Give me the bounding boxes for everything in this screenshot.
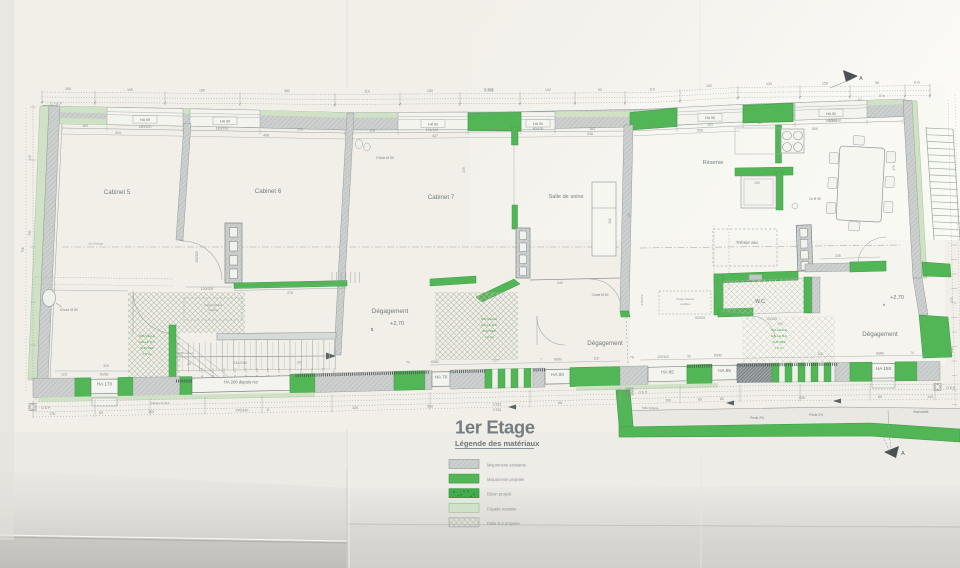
svg-text:8 m: 8 m: [914, 81, 920, 85]
svg-text:Etanchéité: Etanchéité: [913, 410, 928, 414]
svg-text:Dégagement: Dégagement: [372, 308, 409, 315]
svg-text:± 5 m²: ± 5 m²: [143, 352, 152, 356]
svg-text:80/90: 80/90: [554, 357, 562, 361]
svg-text:SUR REZ: SUR REZ: [772, 340, 786, 344]
svg-text:O E.P.: O E.P.: [946, 386, 956, 390]
svg-text:939: 939: [799, 396, 805, 400]
svg-text:Maçonnerie projetée: Maçonnerie projetée: [487, 477, 525, 482]
svg-text:118: 118: [492, 127, 498, 131]
svg-text:DALLE B.A: DALLE B.A: [771, 334, 788, 338]
svg-text:Dégagement: Dégagement: [862, 331, 898, 338]
svg-text:150: 150: [427, 89, 433, 93]
svg-text:20: 20: [187, 362, 191, 366]
svg-text:310: 310: [115, 131, 121, 135]
svg-text:550: 550: [427, 404, 433, 408]
svg-text:58: 58: [875, 81, 879, 85]
svg-text:HA 155: HA 155: [876, 366, 892, 371]
svg-text:58: 58: [558, 401, 562, 405]
svg-text:SUR REZ: SUR REZ: [482, 329, 496, 333]
svg-text:Chute Ø 50: Chute Ø 50: [592, 293, 609, 297]
svg-text:Pente 2%: Pente 2%: [750, 416, 764, 420]
svg-text:235: 235: [835, 254, 841, 258]
svg-text:310: 310: [28, 155, 32, 161]
svg-text:60: 60: [99, 411, 103, 415]
svg-text:92: 92: [598, 88, 602, 92]
svg-text:80/82: 80/82: [431, 360, 439, 364]
svg-text:140: 140: [927, 395, 933, 399]
svg-text:110: 110: [364, 89, 370, 93]
svg-text:180/100: 180/100: [426, 128, 439, 132]
svg-text:240: 240: [950, 347, 954, 353]
svg-text:240: 240: [557, 281, 563, 285]
svg-text:60/60: 60/60: [100, 373, 109, 377]
svg-text:150: 150: [822, 82, 828, 86]
svg-text:160: 160: [65, 87, 71, 91]
svg-text:+2,70: +2,70: [390, 321, 404, 327]
svg-text:Trémie asc: Trémie asc: [736, 240, 759, 245]
svg-text:A: A: [901, 451, 905, 457]
svg-text:150: 150: [199, 88, 205, 92]
svg-text:90/100: 90/100: [533, 127, 544, 131]
svg-text:NOUVELLE: NOUVELLE: [139, 334, 156, 338]
svg-text:5,88 sur rez: 5,88 sur rez: [178, 351, 194, 355]
svg-text:470: 470: [950, 297, 954, 303]
svg-text:HA 85: HA 85: [718, 368, 731, 373]
svg-text:430: 430: [462, 167, 466, 173]
svg-text:90: 90: [627, 213, 631, 217]
svg-text:SUR REZ: SUR REZ: [140, 346, 154, 350]
svg-text:123: 123: [61, 373, 67, 377]
svg-text:100/205: 100/205: [195, 251, 199, 263]
svg-text:8 m: 8 m: [879, 94, 885, 98]
svg-text:60: 60: [698, 398, 702, 402]
svg-text:+2,70: +2,70: [890, 295, 904, 301]
svg-text:330: 330: [352, 406, 358, 410]
svg-text:100: 100: [754, 181, 760, 185]
svg-text:combles: combles: [680, 302, 691, 306]
svg-text:310: 310: [608, 218, 612, 224]
svg-text:2.331: 2.331: [493, 408, 502, 412]
svg-text:Caisse en B.A: Caisse en B.A: [150, 401, 169, 405]
svg-text:Cabinet 7: Cabinet 7: [428, 194, 455, 201]
svg-text:90/205: 90/205: [695, 316, 705, 320]
svg-text:NOUVELLE: NOUVELLE: [481, 317, 498, 321]
svg-text:175: 175: [49, 412, 55, 416]
svg-text:HA 90: HA 90: [140, 118, 150, 122]
svg-text:O E.P.: O E.P.: [638, 391, 648, 395]
svg-text:HA 200 depuis rez: HA 200 depuis rez: [224, 379, 258, 384]
svg-text:HA 00: HA 00: [551, 372, 564, 377]
svg-text:362: 362: [284, 89, 290, 93]
svg-text:183: 183: [589, 127, 595, 131]
svg-text:Maçonnerie existante: Maçonnerie existante: [487, 463, 527, 468]
svg-text:310: 310: [103, 364, 109, 368]
svg-text:121: 121: [652, 125, 658, 129]
svg-text:427: 427: [432, 134, 438, 138]
svg-text:DALLE B.A: DALLE B.A: [481, 323, 498, 327]
svg-text:80/90: 80/90: [714, 354, 722, 358]
svg-text:470: 470: [892, 165, 896, 171]
svg-text:100: 100: [665, 398, 671, 402]
svg-text:Trappe d'accès: Trappe d'accès: [676, 297, 695, 301]
svg-text:NOUVELLE: NOUVELLE: [771, 328, 788, 332]
svg-text:218: 218: [297, 128, 303, 132]
svg-text:270: 270: [287, 291, 293, 295]
svg-text:Façade restante: Façade restante: [487, 506, 517, 511]
svg-text:HA 50: HA 50: [705, 116, 715, 120]
svg-text:74: 74: [406, 361, 410, 365]
svg-text:Réserve: Réserve: [703, 160, 724, 166]
svg-text:Légende des matériaux: Légende des matériaux: [455, 439, 540, 448]
svg-text:190: 190: [127, 88, 133, 92]
svg-text:178/170: 178/170: [640, 294, 644, 305]
svg-text:Cabinet 6: Cabinet 6: [255, 188, 282, 195]
svg-text:Cabinet 5: Cabinet 5: [104, 189, 131, 196]
svg-text:2177: 2177: [492, 359, 499, 363]
svg-text:121: 121: [707, 123, 713, 127]
svg-text:130: 130: [766, 82, 772, 86]
svg-text:A: A: [859, 76, 863, 82]
svg-text:8: 8: [267, 408, 269, 412]
svg-text:HA 90: HA 90: [533, 122, 543, 126]
svg-text:Jeu filetage: Jeu filetage: [88, 242, 104, 246]
svg-text:↯: ↯: [370, 327, 374, 332]
svg-text:800: 800: [812, 127, 818, 131]
svg-text:110: 110: [649, 87, 655, 91]
svg-text:HA 50: HA 50: [826, 112, 836, 116]
svg-text:HA 90: HA 90: [220, 120, 230, 124]
svg-text:DALLE B.A: DALLE B.A: [139, 340, 156, 344]
svg-text:80: 80: [720, 397, 724, 401]
svg-text:20: 20: [297, 361, 301, 365]
svg-text:60/80: 60/80: [876, 352, 884, 356]
svg-text:150/100: 150/100: [829, 119, 842, 123]
svg-text:Chute Ø 50: Chute Ø 50: [376, 156, 394, 160]
svg-text:60: 60: [878, 395, 882, 399]
svg-text:240/240: 240/240: [236, 408, 249, 412]
svg-text:HA 70: HA 70: [435, 374, 448, 379]
svg-text:118: 118: [817, 352, 822, 356]
svg-text:HA 170: HA 170: [97, 382, 113, 387]
svg-text:2e Ø 50: 2e Ø 50: [809, 197, 821, 201]
svg-text:244/244: 244/244: [233, 361, 247, 365]
svg-text:180/100: 180/100: [139, 125, 152, 129]
svg-text:118: 118: [593, 357, 598, 361]
svg-text:192: 192: [706, 84, 712, 88]
svg-text:246: 246: [587, 132, 593, 136]
svg-text:± 5 m²: ± 5 m²: [485, 335, 494, 339]
svg-text:HA 90: HA 90: [428, 122, 438, 126]
svg-text:Salle de soins: Salle de soins: [549, 194, 584, 200]
svg-text:90: 90: [687, 354, 691, 358]
svg-text:Béton projeté: Béton projeté: [487, 492, 512, 497]
svg-text:Dalle B.A projetée: Dalle B.A projetée: [487, 521, 520, 526]
svg-text:Dégagement: Dégagement: [587, 340, 623, 347]
svg-text:595: 595: [697, 129, 703, 133]
svg-text:Pente 2%: Pente 2%: [809, 413, 823, 417]
svg-text:84: 84: [758, 121, 762, 125]
svg-text:Salle héliante: Salle héliante: [642, 406, 659, 411]
svg-text:100/205: 100/205: [201, 287, 214, 291]
svg-text:HA 85: HA 85: [661, 369, 674, 374]
svg-text:163: 163: [148, 410, 154, 414]
svg-text:790: 790: [28, 230, 32, 236]
svg-text:W.C: W.C: [755, 299, 765, 305]
svg-text:combles: combles: [208, 308, 219, 312]
svg-text:100/100: 100/100: [657, 355, 669, 359]
svg-text:✕: ✕: [883, 303, 886, 307]
svg-text:2.331: 2.331: [484, 87, 495, 92]
svg-text:142: 142: [545, 88, 551, 92]
svg-text:1er Etage: 1er Etage: [455, 417, 535, 438]
svg-text:7: 7: [540, 358, 542, 362]
svg-text:100: 100: [82, 124, 88, 128]
svg-text:118: 118: [369, 128, 375, 132]
svg-text:74: 74: [910, 351, 914, 355]
svg-text:408: 408: [263, 133, 269, 137]
svg-text:2.331: 2.331: [493, 403, 502, 407]
svg-text:Trappe d'accès: Trappe d'accès: [204, 303, 223, 307]
svg-text:O E.P.: O E.P.: [41, 406, 51, 410]
svg-text:± 5 m²: ± 5 m²: [775, 346, 784, 350]
svg-text:C + E.P: C + E.P: [50, 102, 63, 106]
svg-text:796: 796: [21, 247, 25, 253]
svg-text:180/100: 180/100: [216, 126, 229, 130]
svg-text:Chute Ø 50: Chute Ø 50: [60, 308, 78, 312]
